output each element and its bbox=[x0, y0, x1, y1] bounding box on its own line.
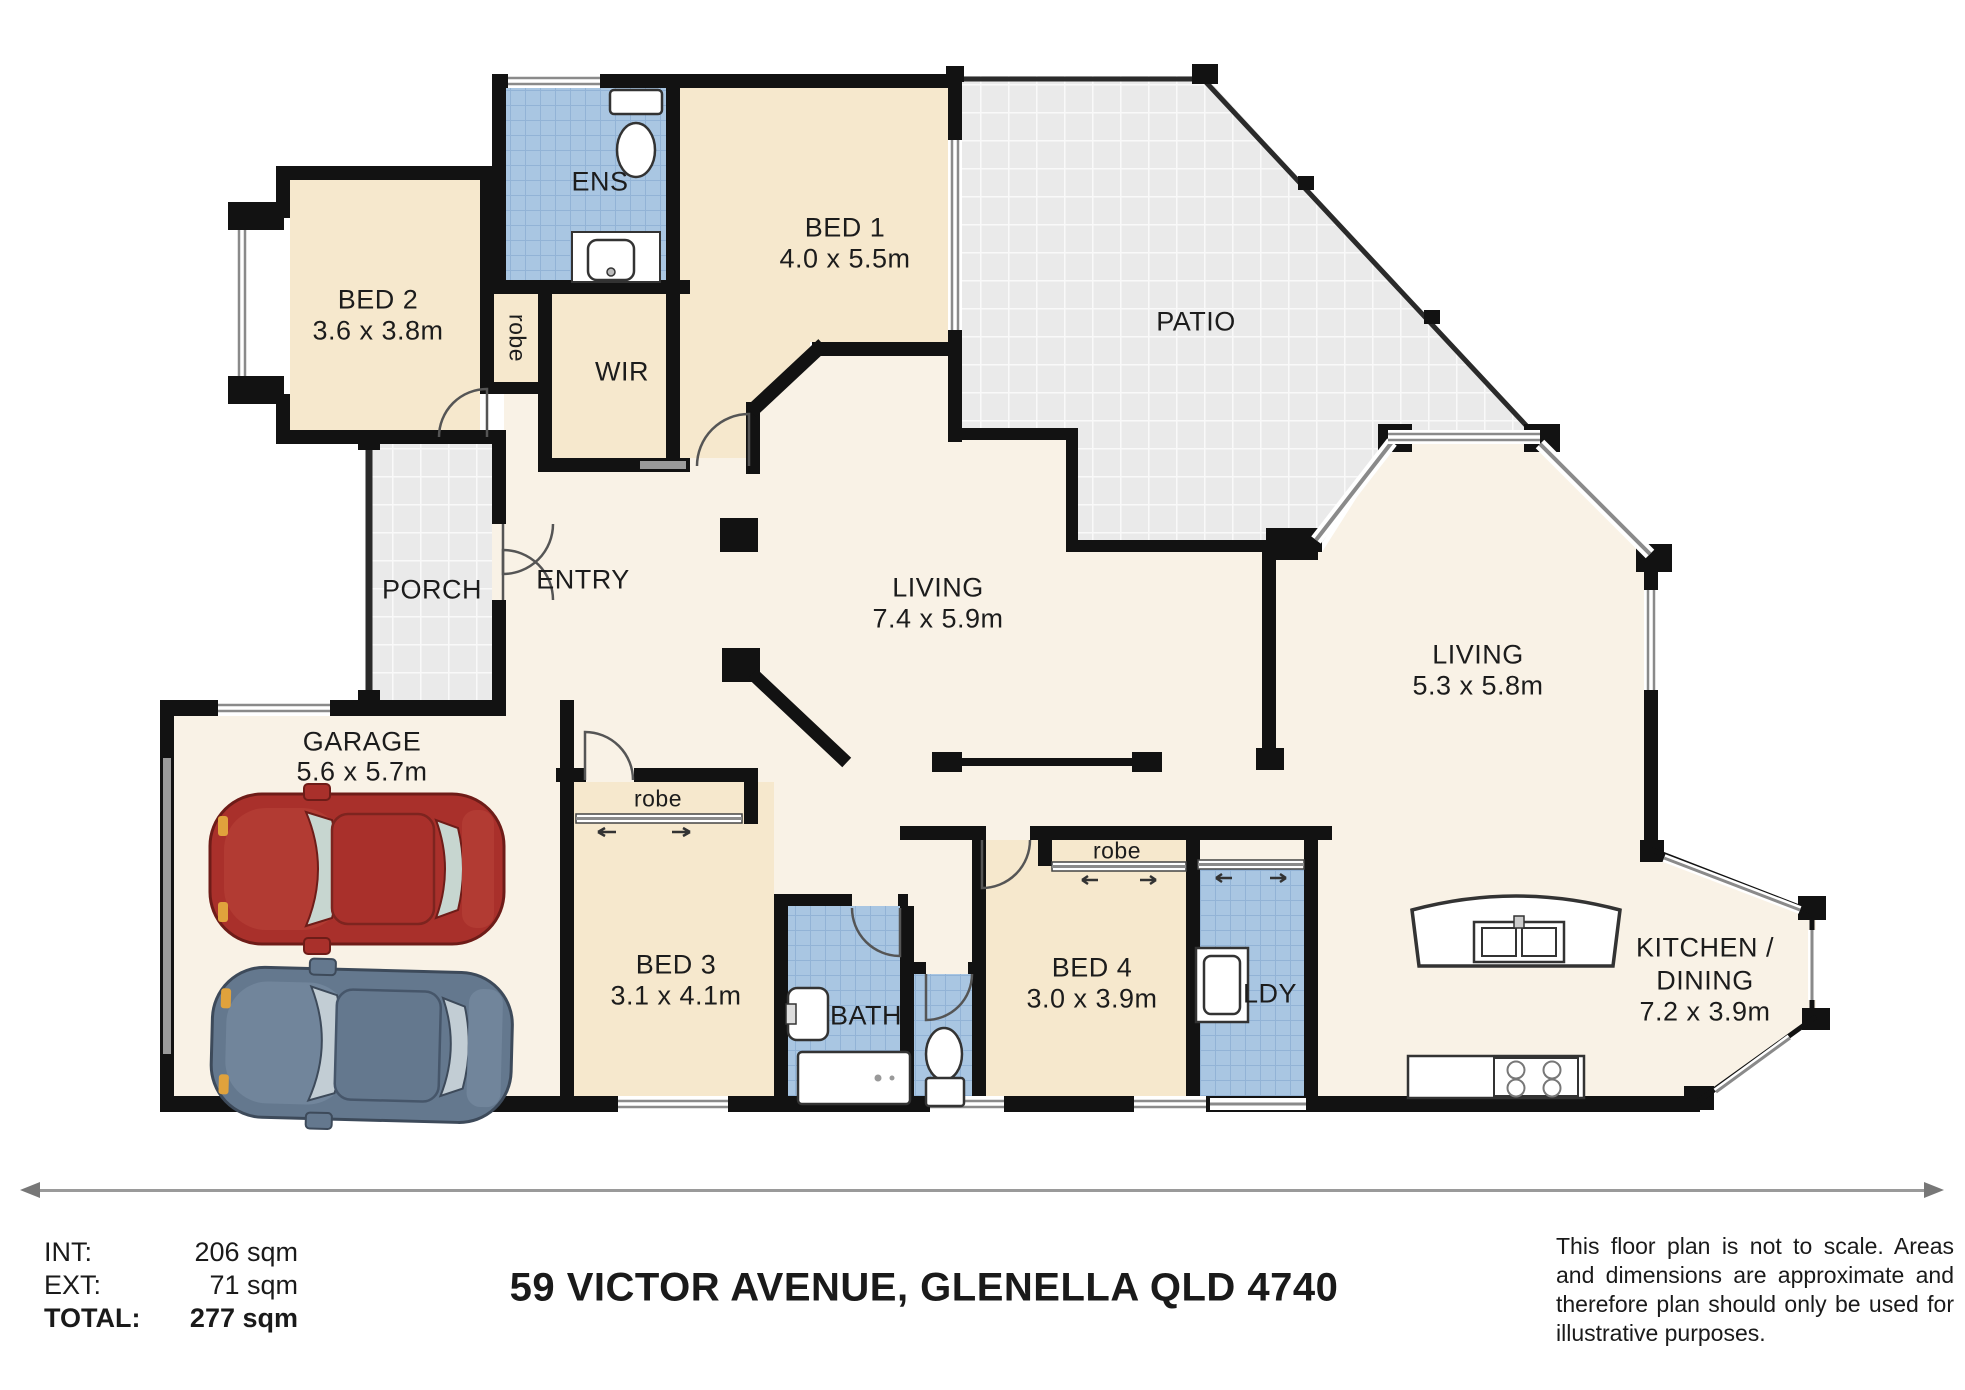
room-dims-garage: 5.6 x 5.7m bbox=[296, 757, 427, 788]
room-dims-bed4: 3.0 x 3.9m bbox=[1026, 984, 1157, 1015]
room-label-kitchen-line2: DINING bbox=[1656, 966, 1754, 997]
room-label-kitchen-line1: KITCHEN / bbox=[1636, 933, 1774, 964]
kitchen-island-sink bbox=[1412, 896, 1620, 966]
area-int-value: 206 sqm bbox=[148, 1237, 298, 1268]
room-label-garage: GARAGE bbox=[303, 727, 422, 758]
room-label-wir: WIR bbox=[595, 357, 649, 388]
room-label-porch: PORCH bbox=[382, 575, 482, 606]
bath-tub bbox=[798, 1052, 910, 1104]
room-label-patio: PATIO bbox=[1156, 307, 1236, 338]
room-label-robe4: robe bbox=[1093, 838, 1141, 865]
area-ext-label: EXT: bbox=[44, 1270, 148, 1301]
room-dims-bed1: 4.0 x 5.5m bbox=[779, 244, 910, 275]
car-red bbox=[210, 784, 504, 954]
room-label-entry: ENTRY bbox=[536, 565, 630, 596]
area-ext-value: 71 sqm bbox=[148, 1270, 298, 1301]
floorplan-page: ENS BED 1 4.0 x 5.5m BED 2 3.6 x 3.8m ro… bbox=[0, 0, 1965, 1390]
wc-toilet bbox=[926, 1028, 964, 1106]
area-row-total: TOTAL: 277 sqm bbox=[44, 1302, 298, 1335]
room-label-bed2: BED 2 bbox=[338, 285, 419, 316]
room-porch-floor bbox=[372, 444, 492, 700]
room-dims-living1: 7.4 x 5.9m bbox=[872, 604, 1003, 635]
area-total-value: 277 sqm bbox=[148, 1303, 298, 1334]
kitchen-cooktop bbox=[1408, 1056, 1584, 1098]
room-label-robe3: robe bbox=[634, 786, 682, 813]
area-total-label: TOTAL: bbox=[44, 1303, 148, 1334]
scale-arrow-right-icon bbox=[1924, 1182, 1944, 1198]
room-dims-living2: 5.3 x 5.8m bbox=[1412, 671, 1543, 702]
page-title: 59 VICTOR AVENUE, GLENELLA QLD 4740 bbox=[510, 1266, 1339, 1311]
room-label-ldy: LDY bbox=[1243, 979, 1297, 1010]
area-summary: INT: 206 sqm EXT: 71 sqm TOTAL: 277 sqm bbox=[44, 1236, 298, 1335]
scale-arrow-left-icon bbox=[20, 1182, 40, 1198]
room-dims-bed3: 3.1 x 4.1m bbox=[610, 981, 741, 1012]
area-row-ext: EXT: 71 sqm bbox=[44, 1269, 298, 1302]
area-row-int: INT: 206 sqm bbox=[44, 1236, 298, 1269]
room-label-bed1: BED 1 bbox=[805, 213, 886, 244]
ldy-tub bbox=[1196, 948, 1248, 1022]
room-label-bath: BATH bbox=[830, 1001, 902, 1032]
car-blue bbox=[210, 956, 514, 1134]
room-dims-kitchen: 7.2 x 3.9m bbox=[1639, 997, 1770, 1028]
bath-sink bbox=[786, 988, 828, 1040]
room-label-living1: LIVING bbox=[892, 573, 984, 604]
room-label-robe2: robe bbox=[504, 314, 531, 362]
disclaimer-text: This floor plan is not to scale. Areas a… bbox=[1556, 1232, 1954, 1348]
room-label-bed3: BED 3 bbox=[636, 950, 717, 981]
room-label-bed4: BED 4 bbox=[1052, 953, 1133, 984]
room-label-ens: ENS bbox=[571, 167, 628, 198]
area-int-label: INT: bbox=[44, 1237, 148, 1268]
room-dims-bed2: 3.6 x 3.8m bbox=[312, 316, 443, 347]
scale-arrow bbox=[20, 1182, 1944, 1198]
room-bed3-floor bbox=[574, 782, 774, 1106]
room-label-living2: LIVING bbox=[1432, 640, 1524, 671]
ens-sink bbox=[572, 232, 660, 282]
scale-arrow-line bbox=[34, 1189, 1930, 1192]
